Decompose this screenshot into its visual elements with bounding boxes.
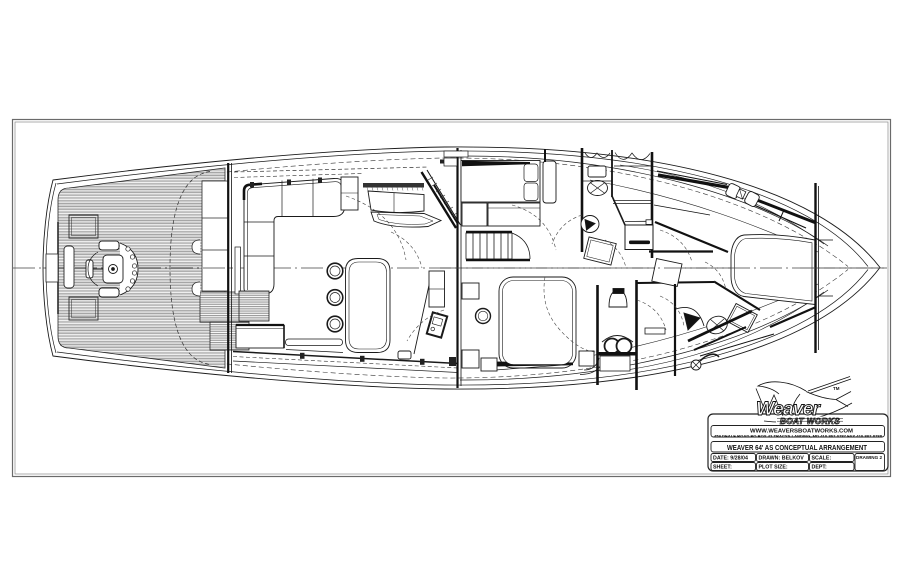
- svg-text:DEPT:: DEPT:: [812, 465, 828, 471]
- svg-text:DRAWING 2: DRAWING 2: [856, 455, 882, 460]
- svg-text:SHEET:: SHEET:: [713, 465, 732, 471]
- svg-text:PLOT SIZE:: PLOT SIZE:: [759, 465, 788, 471]
- svg-text:DRAWN: BELKOV: DRAWN: BELKOV: [759, 456, 805, 462]
- svg-text:TM: TM: [833, 386, 840, 391]
- svg-text:DATE: 9/28/04: DATE: 9/28/04: [713, 456, 748, 462]
- svg-text:459 DEALE ROAD PO BOX 42 TRA: 459 DEALE ROAD PO BOX 42 TRACYS LANDING,…: [714, 434, 882, 438]
- svg-text:SCALE:: SCALE:: [812, 456, 832, 462]
- svg-text:WEAVER 64' AS CONCEPTUAL ARRAN: WEAVER 64' AS CONCEPTUAL ARRANGEMENT: [727, 445, 868, 452]
